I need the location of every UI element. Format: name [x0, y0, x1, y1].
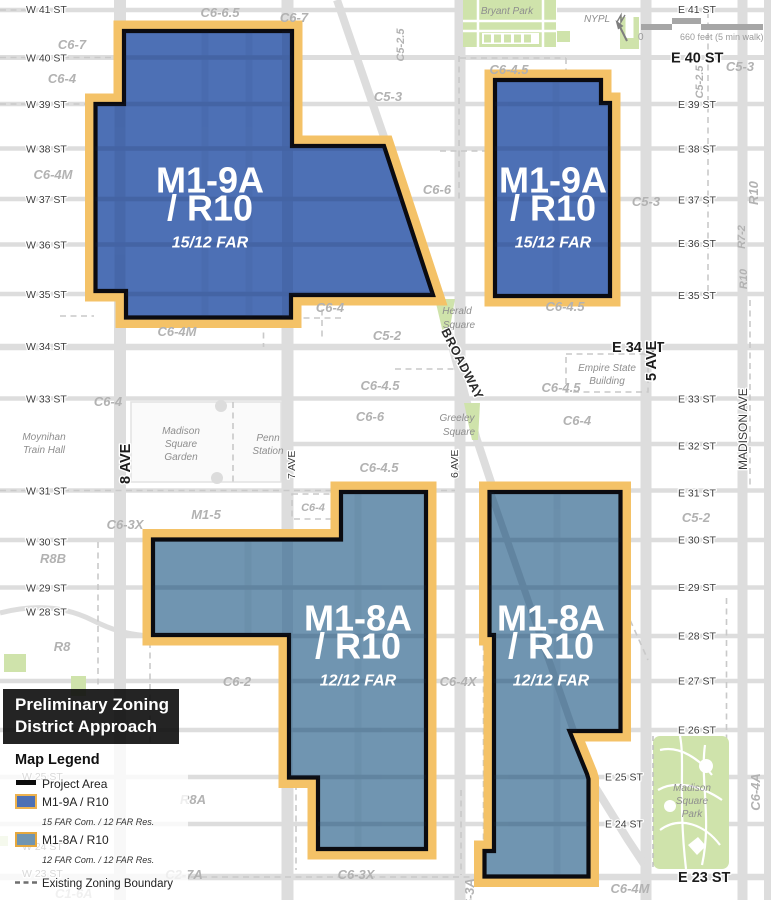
svg-text:E 29 ST: E 29 ST	[678, 582, 717, 594]
svg-text:C5-3: C5-3	[374, 89, 403, 104]
svg-text:Empire State: Empire State	[578, 363, 636, 374]
svg-text:E 23 ST: E 23 ST	[678, 870, 731, 886]
svg-text:Bryant Park: Bryant Park	[481, 6, 534, 17]
svg-text:/ R10: / R10	[510, 188, 596, 229]
svg-text:W 39 ST: W 39 ST	[26, 99, 67, 111]
svg-text:E 33 ST: E 33 ST	[678, 394, 717, 406]
svg-text:E 28 ST: E 28 ST	[678, 631, 717, 643]
svg-text:M1-5: M1-5	[191, 507, 221, 522]
svg-text:E 41 ST: E 41 ST	[678, 4, 717, 16]
svg-text:W 37 ST: W 37 ST	[26, 194, 67, 206]
svg-text:R7-2: R7-2	[736, 225, 748, 249]
svg-text:C6-4X: C6-4X	[440, 674, 478, 689]
svg-text:E 40 ST: E 40 ST	[671, 51, 724, 67]
svg-text:Station: Station	[252, 446, 284, 457]
svg-text:C6-4M: C6-4M	[610, 881, 650, 896]
svg-text:C5-2: C5-2	[682, 510, 711, 525]
svg-text:C6-4: C6-4	[301, 502, 325, 514]
svg-text:R8: R8	[54, 639, 71, 654]
svg-text:12 FAR Com. / 12 FAR Res.: 12 FAR Com. / 12 FAR Res.	[42, 855, 154, 865]
svg-text:12/12 FAR: 12/12 FAR	[320, 673, 397, 690]
svg-text:W 34 ST: W 34 ST	[26, 341, 67, 353]
svg-text:Project Area: Project Area	[42, 777, 108, 791]
svg-text:E 36 ST: E 36 ST	[678, 238, 717, 250]
svg-text:C6-4.5: C6-4.5	[545, 299, 585, 314]
svg-text:C6-6: C6-6	[356, 409, 385, 424]
svg-text:15/12 FAR: 15/12 FAR	[172, 235, 249, 252]
svg-text:E 30 ST: E 30 ST	[678, 535, 717, 547]
svg-text:Preliminary Zoning: Preliminary Zoning	[15, 695, 169, 714]
svg-text:Moynihan: Moynihan	[22, 432, 66, 443]
svg-text:W 29 ST: W 29 ST	[26, 583, 67, 595]
svg-text:Park: Park	[682, 809, 704, 820]
svg-text:C6-2: C6-2	[223, 674, 252, 689]
svg-text:Square: Square	[443, 427, 476, 438]
svg-text:/ R10: / R10	[167, 188, 253, 229]
svg-text:E 27 ST: E 27 ST	[678, 676, 717, 688]
svg-text:C6-4M: C6-4M	[157, 324, 197, 339]
svg-text:7 AVE: 7 AVE	[286, 451, 298, 479]
svg-text:R10: R10	[746, 180, 761, 205]
svg-text:Garden: Garden	[164, 452, 198, 463]
svg-text:C5-2.5: C5-2.5	[395, 28, 407, 62]
svg-text:/ R10: / R10	[315, 626, 401, 667]
svg-text:C5-2: C5-2	[373, 328, 402, 343]
svg-text:C6-7: C6-7	[280, 10, 309, 25]
svg-text:Square: Square	[165, 439, 198, 450]
svg-text:12/12 FAR: 12/12 FAR	[513, 673, 590, 690]
svg-text:C6-4.5: C6-4.5	[360, 378, 400, 393]
svg-text:C6-3A: C6-3A	[462, 878, 477, 900]
svg-text:C6-4: C6-4	[94, 394, 123, 409]
svg-text:District Approach: District Approach	[15, 717, 157, 736]
svg-text:0: 0	[638, 32, 644, 43]
svg-text:660 feet (5 min walk): 660 feet (5 min walk)	[680, 32, 764, 42]
svg-text:M1-8A / R10: M1-8A / R10	[42, 833, 109, 847]
svg-text:W 33 ST: W 33 ST	[26, 394, 67, 406]
svg-text:E 24 ST: E 24 ST	[605, 819, 644, 831]
svg-text:Herald: Herald	[442, 306, 472, 317]
svg-text:C6-4.5: C6-4.5	[489, 62, 529, 77]
svg-text:C6-4.5: C6-4.5	[541, 380, 581, 395]
svg-text:Map Legend: Map Legend	[15, 752, 100, 768]
svg-text:E 31 ST: E 31 ST	[678, 488, 717, 500]
svg-text:E 39 ST: E 39 ST	[678, 99, 717, 111]
svg-text:5 AVE: 5 AVE	[644, 340, 660, 381]
svg-text:Square: Square	[676, 796, 709, 807]
svg-text:W 41 ST: W 41 ST	[26, 4, 67, 16]
svg-text:Greeley: Greeley	[439, 413, 475, 424]
svg-text:C6-7: C6-7	[58, 37, 87, 52]
svg-text:C6-4.5: C6-4.5	[359, 460, 399, 475]
svg-text:E 32 ST: E 32 ST	[678, 441, 717, 453]
svg-text:C6-4: C6-4	[563, 413, 592, 428]
svg-text:Existing Zoning Boundary: Existing Zoning Boundary	[42, 878, 173, 890]
svg-text:C5-3: C5-3	[632, 194, 661, 209]
svg-text:E 25 ST: E 25 ST	[605, 772, 644, 784]
svg-text:W 30 ST: W 30 ST	[26, 537, 67, 549]
svg-text:15/12 FAR: 15/12 FAR	[515, 235, 592, 252]
svg-text:C6-6.5: C6-6.5	[200, 5, 240, 20]
svg-text:E 26 ST: E 26 ST	[678, 725, 717, 737]
svg-text:MADISON AVE: MADISON AVE	[736, 388, 750, 470]
svg-text:W 35 ST: W 35 ST	[26, 289, 67, 301]
svg-text:Building: Building	[589, 376, 625, 387]
svg-text:Square: Square	[443, 320, 476, 331]
svg-text:C6-3X: C6-3X	[338, 867, 376, 882]
svg-text:C5-3: C5-3	[726, 59, 755, 74]
svg-text:Train Hall: Train Hall	[23, 445, 66, 456]
svg-text:M1-9A / R10: M1-9A / R10	[42, 795, 109, 809]
svg-text:C6-4: C6-4	[48, 71, 77, 86]
svg-text:R10: R10	[738, 268, 750, 289]
svg-text:W 38 ST: W 38 ST	[26, 144, 67, 156]
svg-text:C6-4: C6-4	[316, 300, 345, 315]
svg-text:NYPL: NYPL	[584, 14, 610, 25]
svg-text:C5-2.5: C5-2.5	[694, 65, 706, 99]
svg-text:15 FAR Com. / 12 FAR Res.: 15 FAR Com. / 12 FAR Res.	[42, 817, 154, 827]
svg-text:C6-4A: C6-4A	[748, 773, 763, 811]
svg-text:C6-6: C6-6	[423, 182, 452, 197]
svg-text:E 38 ST: E 38 ST	[678, 144, 717, 156]
svg-text:8 AVE: 8 AVE	[118, 443, 134, 484]
svg-text:E 35 ST: E 35 ST	[678, 290, 717, 302]
svg-text:E 37 ST: E 37 ST	[678, 195, 717, 207]
svg-text:W 31 ST: W 31 ST	[26, 486, 67, 498]
svg-text:R8B: R8B	[40, 551, 66, 566]
svg-text:Madison: Madison	[673, 783, 711, 794]
svg-text:W 40 ST: W 40 ST	[26, 53, 67, 65]
svg-text:C6-4M: C6-4M	[33, 167, 73, 182]
svg-text:Penn: Penn	[256, 433, 280, 444]
svg-text:6 AVE: 6 AVE	[449, 450, 461, 478]
svg-text:/ R10: / R10	[508, 626, 594, 667]
svg-text:Madison: Madison	[162, 426, 200, 437]
svg-text:C6-3X: C6-3X	[107, 517, 145, 532]
svg-text:W 36 ST: W 36 ST	[26, 240, 67, 252]
svg-text:W 28 ST: W 28 ST	[26, 607, 67, 619]
